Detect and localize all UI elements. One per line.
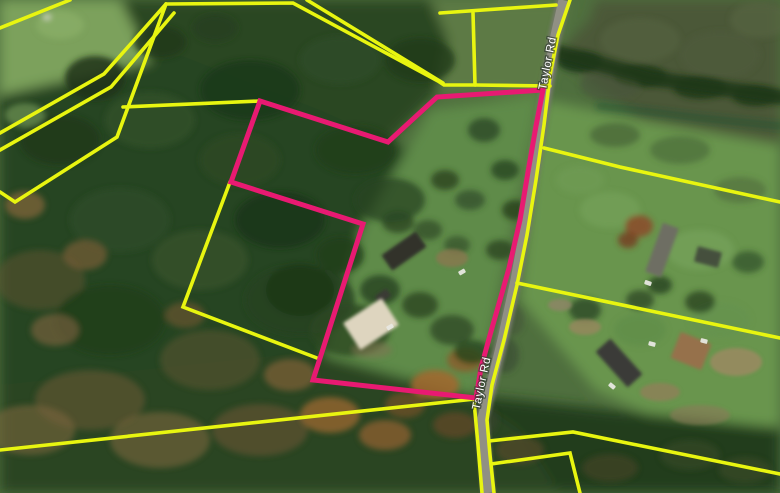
vegetation-blob — [266, 264, 334, 316]
map-viewport[interactable]: Taylor RdTaylor Rd — [0, 0, 780, 493]
vegetation-blob — [582, 454, 638, 482]
vegetation-blob — [455, 190, 485, 210]
vegetation-blob — [31, 314, 79, 346]
vegetation-blob — [402, 292, 438, 318]
vegetation-blob — [382, 211, 414, 233]
driveway-patch — [640, 383, 680, 401]
driveway-patch — [710, 348, 762, 376]
vegetation-blob — [212, 404, 308, 456]
vegetation-blob — [110, 412, 210, 468]
driveway-patch — [436, 249, 468, 267]
vegetation-blob — [618, 232, 638, 248]
vegetation-blob — [685, 291, 715, 313]
vegetation-blob — [556, 166, 604, 194]
vegetation-blob — [491, 160, 519, 180]
vegetation-blob — [43, 14, 51, 20]
vegetation-blob — [36, 11, 84, 39]
vegetation-blob — [614, 314, 666, 346]
aerial-map-canvas[interactable]: Taylor RdTaylor Rd — [0, 0, 780, 493]
driveway-patch — [670, 405, 730, 425]
vegetation-blob — [680, 31, 760, 79]
driveway-patch — [548, 299, 572, 311]
vegetation-blob — [648, 276, 672, 294]
vegetation-blob — [468, 118, 500, 142]
vegetation-blob — [431, 170, 459, 190]
vegetation-blob — [5, 103, 45, 127]
vegetation-blob — [650, 136, 710, 164]
vegetation-blob — [732, 251, 764, 273]
vegetation-blob — [193, 14, 237, 42]
vegetation-blob — [63, 240, 107, 270]
vegetation-blob — [105, 92, 195, 148]
vegetation-blob — [160, 330, 260, 390]
vegetation-blob — [264, 359, 316, 391]
vegetation-blob — [590, 123, 640, 147]
parcel-boundary-line — [473, 13, 475, 85]
vegetation-blob — [600, 18, 680, 62]
vegetation-blob — [433, 412, 477, 438]
vegetation-blob — [359, 420, 411, 450]
driveway-patch — [569, 319, 601, 335]
vegetation-blob — [235, 192, 325, 248]
vegetation-blob — [569, 298, 601, 322]
